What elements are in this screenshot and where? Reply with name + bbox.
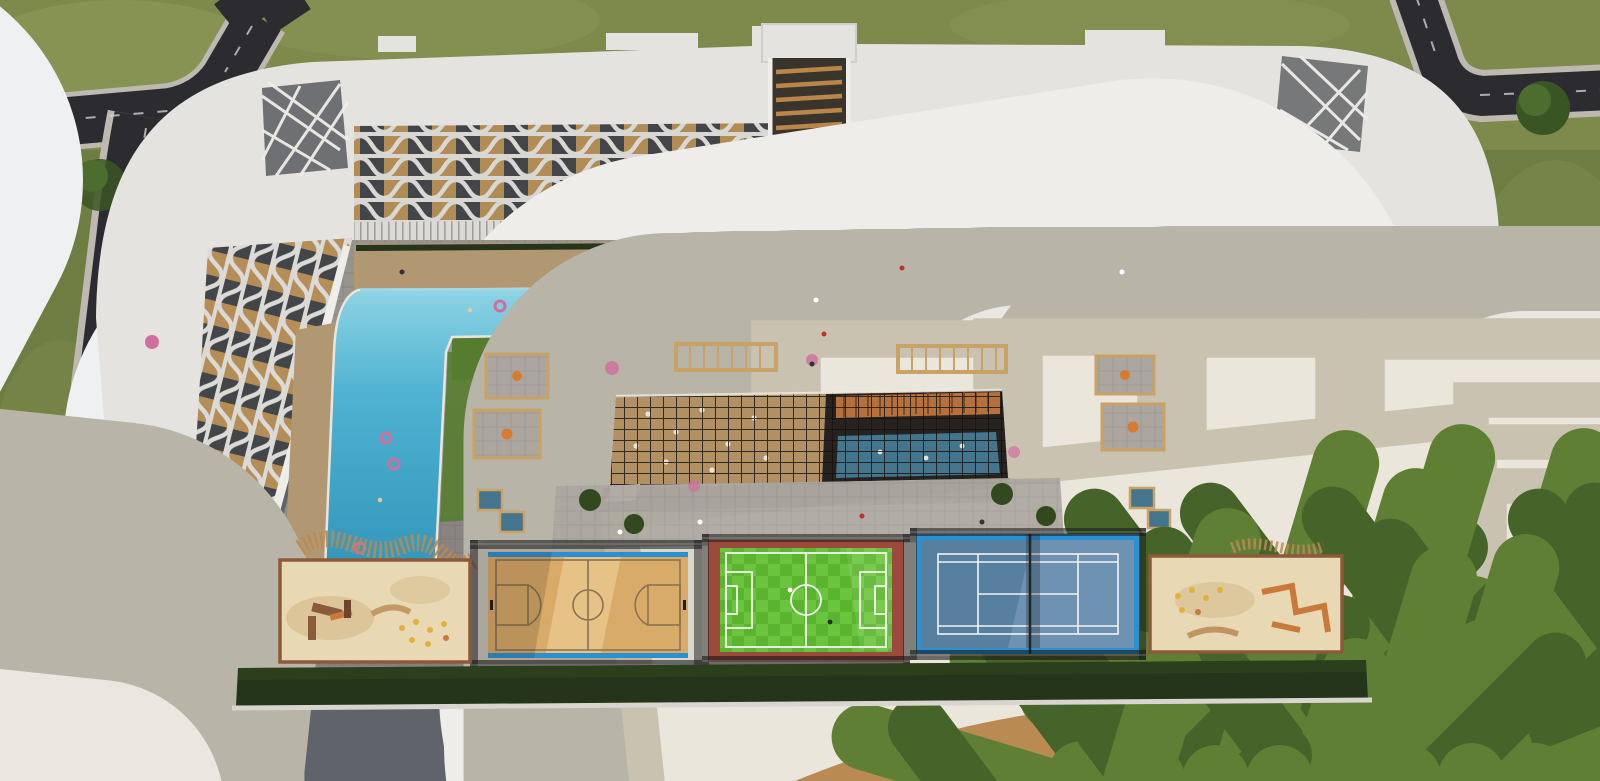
atrium-cap bbox=[762, 24, 856, 62]
roof-notch-3 bbox=[1085, 30, 1165, 46]
tennis-court bbox=[910, 528, 1146, 660]
playground-right bbox=[1150, 556, 1342, 652]
playground-left bbox=[280, 560, 470, 662]
render-canvas: Aerial 3D render — U-shaped residential … bbox=[0, 0, 1600, 781]
canopy-gridshell bbox=[610, 390, 1008, 486]
tennis-net-shadow bbox=[1026, 534, 1040, 648]
firepit-right-1 bbox=[1096, 356, 1154, 394]
aerial-render: Aerial 3D render — U-shaped residential … bbox=[0, 0, 1600, 781]
firepit-left-1 bbox=[486, 354, 548, 398]
roof-notch-1 bbox=[378, 36, 416, 52]
football-pitch bbox=[702, 534, 910, 666]
firepit-left-2 bbox=[474, 410, 540, 458]
basketball-court bbox=[470, 540, 702, 670]
firepit-right-2 bbox=[1102, 404, 1164, 450]
roof-lattice-topleft bbox=[262, 80, 348, 176]
roof-notch-2 bbox=[606, 33, 698, 50]
pink-parasol bbox=[145, 335, 159, 349]
